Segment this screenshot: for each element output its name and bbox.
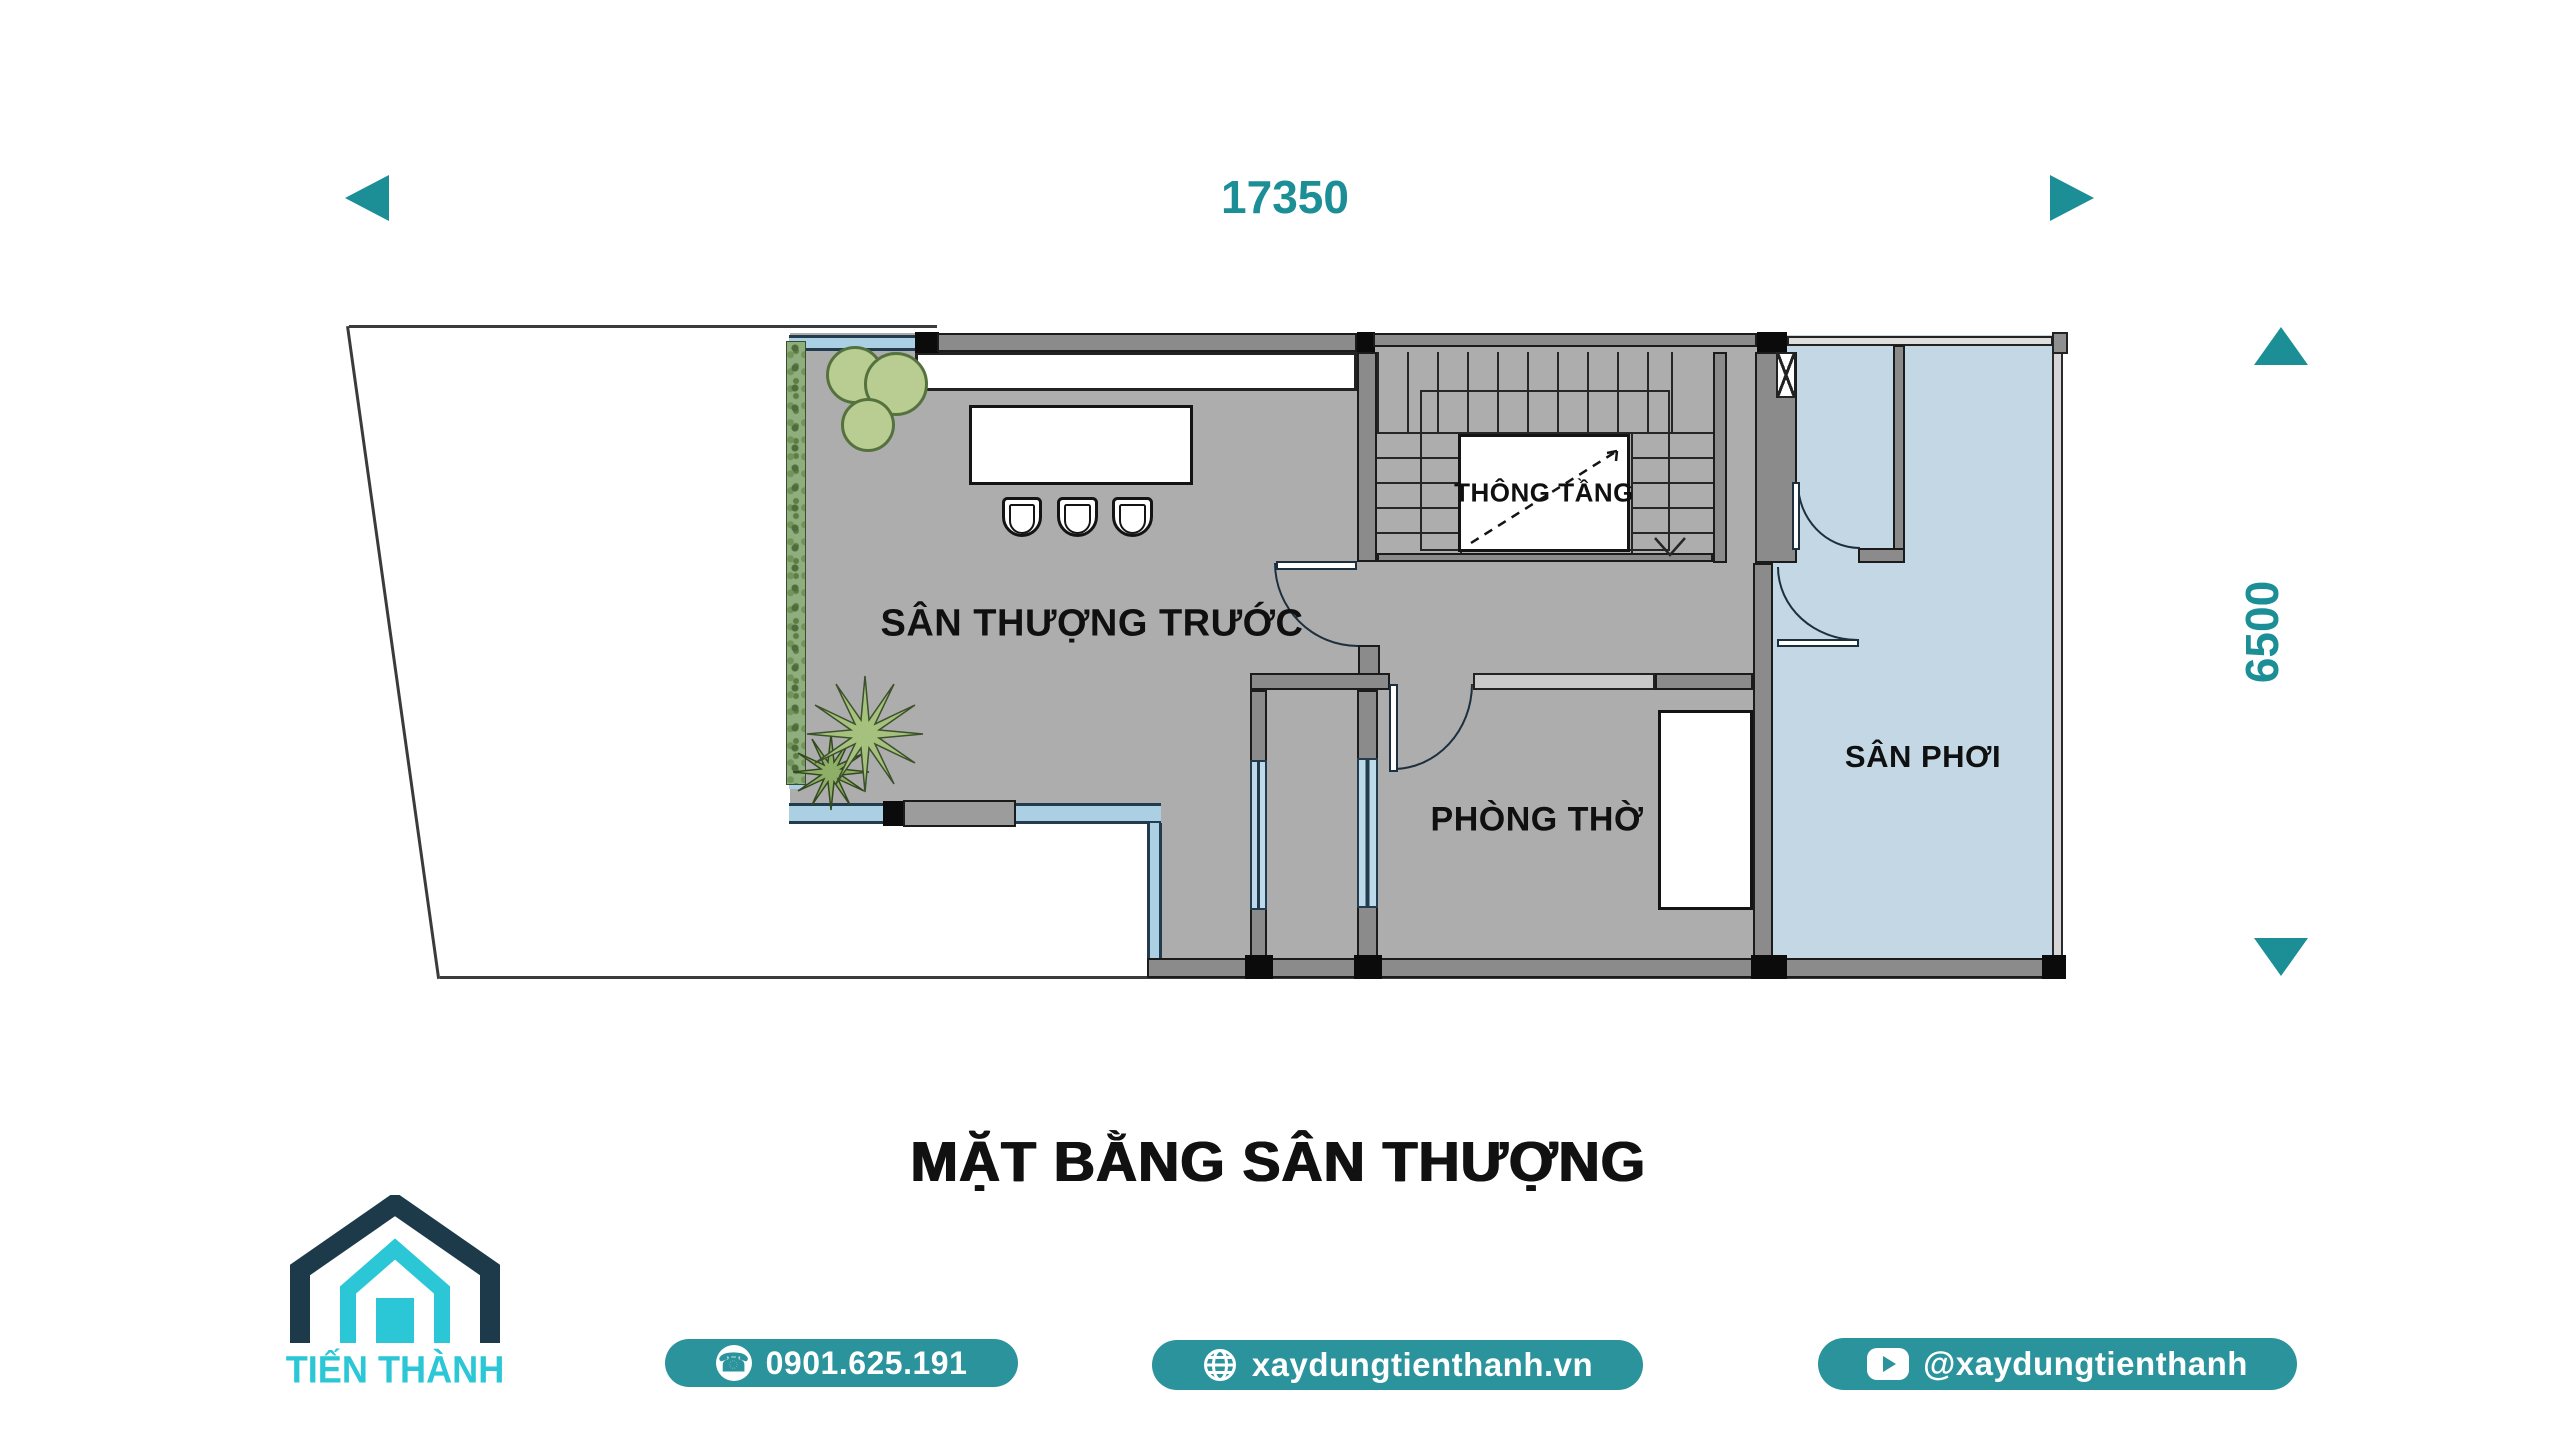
chair bbox=[1112, 497, 1153, 537]
window-worship-left bbox=[1357, 758, 1378, 908]
wall-yard-room-bottom bbox=[1858, 548, 1905, 563]
altar-cabinet bbox=[1658, 710, 1753, 910]
wall-worship-right bbox=[1753, 563, 1773, 958]
wall-top-terrace bbox=[937, 333, 1357, 352]
property-boundary-left bbox=[346, 326, 440, 979]
wall-worship-top-left bbox=[1250, 673, 1390, 690]
website-url: xaydungtienthanh.vn bbox=[1252, 1346, 1593, 1384]
wall-right-boundary bbox=[2052, 354, 2063, 978]
dimension-arrow-right-icon bbox=[2050, 175, 2094, 221]
window-shaft-west bbox=[1250, 760, 1267, 910]
room-label-terrace: SÂN THƯỢNG TRƯỚC bbox=[881, 603, 1304, 646]
column bbox=[2052, 332, 2068, 354]
phone-badge[interactable]: ☎ 0901.625.191 bbox=[665, 1339, 1018, 1387]
terrace-table bbox=[969, 405, 1193, 485]
skylight-strip bbox=[915, 352, 1357, 391]
property-boundary-top bbox=[349, 325, 937, 328]
room-label-drying: SÂN PHƠI bbox=[1845, 739, 2001, 775]
dimension-arrow-left-icon bbox=[345, 175, 389, 221]
wall-stub bbox=[1358, 645, 1380, 676]
dimension-height-value: 6500 bbox=[2235, 581, 2289, 683]
door-leaf-yard bbox=[1777, 639, 1859, 647]
door-leaf-worship bbox=[1389, 684, 1398, 772]
shaft-column-x bbox=[1776, 352, 1796, 398]
wall-yard-room-right bbox=[1893, 345, 1905, 550]
brand-logo-house-icon bbox=[290, 1195, 500, 1343]
wall-stairhall-right bbox=[1713, 352, 1727, 563]
website-badge[interactable]: xaydungtienthanh.vn bbox=[1152, 1340, 1643, 1390]
dimension-arrow-down-icon bbox=[2254, 938, 2308, 976]
terrace-cutout bbox=[790, 823, 1147, 976]
chair bbox=[1002, 497, 1042, 537]
brand-name: TIẾN THÀNH bbox=[286, 1350, 505, 1393]
wall-stairhall-left bbox=[1357, 352, 1377, 562]
dimension-width-value: 17350 bbox=[1221, 170, 1349, 224]
wall-worship-top-mid bbox=[1473, 673, 1655, 690]
globe-icon bbox=[1202, 1347, 1238, 1383]
column bbox=[1751, 955, 1787, 979]
floor-plan-page: 17350 6500 THÔNG TẦNG bbox=[0, 0, 2560, 1439]
door-leaf-terrace bbox=[1276, 561, 1357, 570]
column bbox=[915, 332, 939, 353]
social-badge[interactable]: @xaydungtienthanh bbox=[1818, 1338, 2297, 1390]
door-leaf-yard-room bbox=[1792, 482, 1800, 550]
column bbox=[2042, 955, 2066, 979]
wall-top-stairs bbox=[1373, 333, 1757, 347]
wall-bottom bbox=[1147, 958, 2065, 978]
plan-title: MẶT BẰNG SÂN THƯỢNG bbox=[910, 1129, 1646, 1195]
youtube-icon bbox=[1867, 1348, 1909, 1380]
bush-plant bbox=[841, 398, 895, 452]
phone-number: 0901.625.191 bbox=[766, 1345, 968, 1382]
column bbox=[1245, 955, 1273, 979]
room-label-void: THÔNG TẦNG bbox=[1454, 478, 1634, 509]
column bbox=[1354, 955, 1382, 979]
room-label-worship: PHÒNG THỜ bbox=[1431, 801, 1644, 840]
phone-icon: ☎ bbox=[716, 1345, 752, 1381]
dimension-arrow-up-icon bbox=[2254, 327, 2308, 365]
social-handle: @xaydungtienthanh bbox=[1923, 1345, 2248, 1383]
void-label-box: THÔNG TẦNG bbox=[1458, 434, 1630, 552]
chair bbox=[1057, 497, 1098, 537]
railing-right bbox=[1147, 823, 1162, 958]
stair-direction-arrow-icon bbox=[1652, 536, 1688, 558]
wall-top-yard bbox=[1787, 336, 2053, 346]
column bbox=[1757, 332, 1787, 353]
corner-spiky-plant bbox=[793, 672, 928, 812]
wall-worship-top-right bbox=[1655, 673, 1753, 690]
